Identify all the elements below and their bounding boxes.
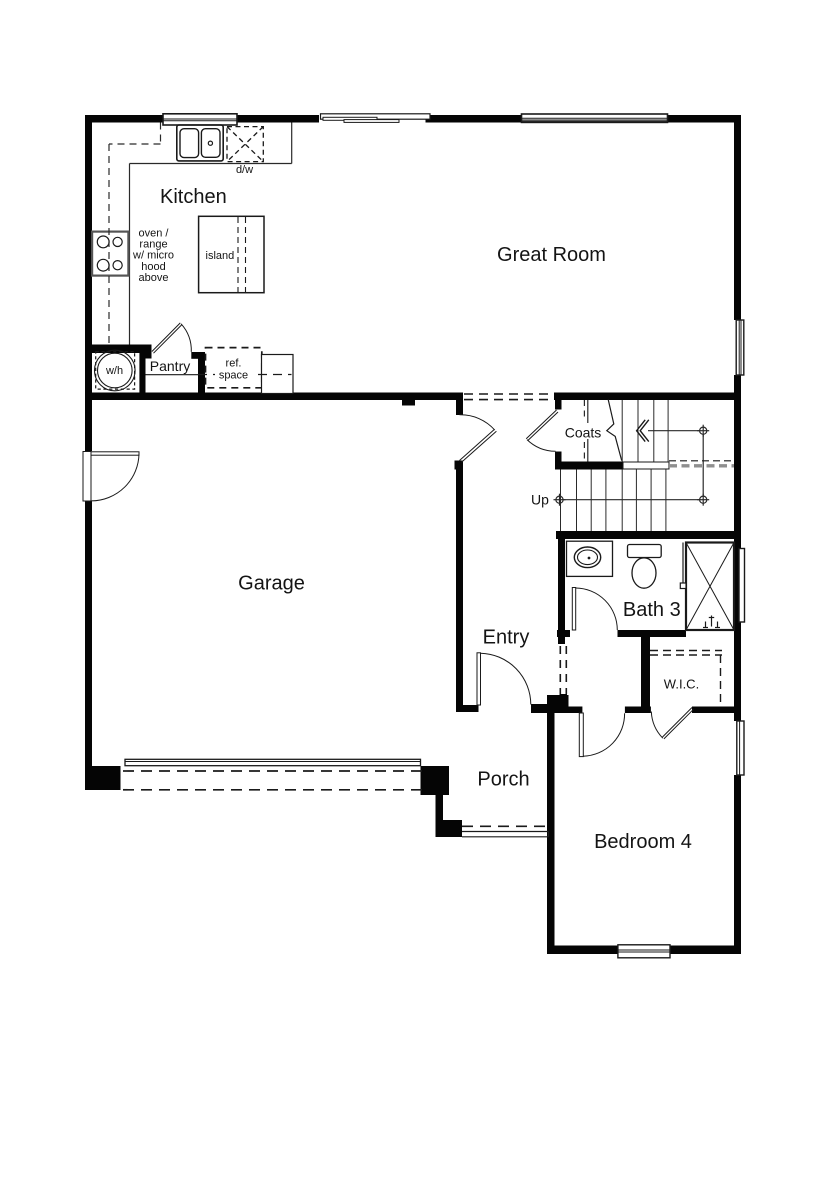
svg-text:ref.: ref. — [226, 358, 242, 370]
svg-text:Bath 3: Bath 3 — [623, 599, 681, 621]
svg-text:Up: Up — [531, 492, 549, 508]
svg-text:Coats: Coats — [565, 425, 602, 441]
svg-text:Kitchen: Kitchen — [160, 186, 227, 208]
svg-text:Entry: Entry — [483, 627, 530, 649]
svg-text:above: above — [139, 272, 169, 284]
svg-text:Great Room: Great Room — [497, 244, 606, 266]
svg-text:d/w: d/w — [236, 164, 253, 176]
svg-text:Pantry: Pantry — [150, 358, 190, 374]
svg-text:Porch: Porch — [477, 769, 529, 791]
svg-text:island: island — [206, 250, 235, 262]
svg-text:Garage: Garage — [238, 573, 305, 595]
svg-text:space: space — [219, 370, 248, 382]
svg-text:W.I.C.: W.I.C. — [664, 677, 699, 692]
svg-text:Bedroom 4: Bedroom 4 — [594, 831, 692, 853]
svg-text:w/h: w/h — [105, 365, 123, 377]
svg-text:w/ micro: w/ micro — [132, 250, 174, 262]
